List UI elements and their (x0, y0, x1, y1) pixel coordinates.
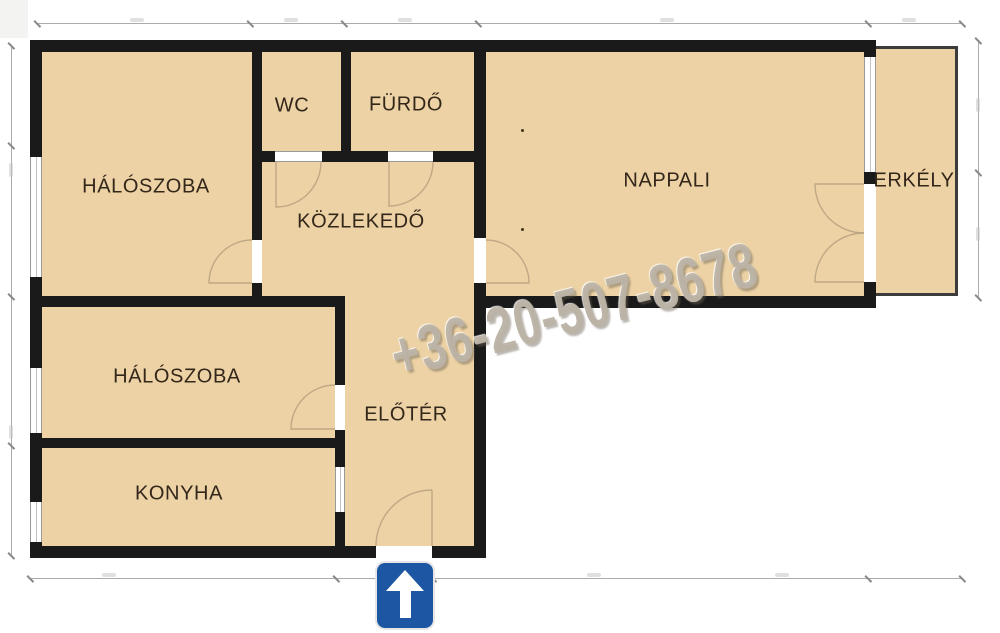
door-opening (275, 151, 322, 162)
wall-segment (341, 52, 351, 151)
door-opening (388, 151, 433, 162)
dimension-label (587, 573, 601, 577)
room-label-bathroom: FÜRDŐ (369, 94, 443, 117)
window (30, 502, 42, 542)
dimension-label (976, 98, 980, 112)
up-arrow-icon (386, 570, 424, 591)
balcony-door-opening (864, 184, 876, 282)
dimension-label (102, 573, 116, 577)
dimension-label (284, 18, 298, 22)
dimension-label (976, 227, 980, 241)
wall-segment (30, 40, 876, 52)
entrance-door-opening (376, 546, 432, 558)
room-label-bedroom-2: HÁLÓSZOBA (113, 366, 241, 389)
entrance-arrow-sign (377, 563, 433, 628)
dimension-label (775, 573, 789, 577)
door-opening (474, 238, 486, 283)
room-label-wc: WC (275, 95, 310, 118)
wall-segment (30, 438, 345, 448)
corner-shade (0, 0, 28, 38)
dimension-label (9, 163, 13, 177)
door-opening (252, 240, 262, 283)
room-label-kitchen: KONYHA (135, 483, 223, 506)
plan-dot (521, 129, 524, 132)
dimension-label (660, 18, 674, 22)
dimension-line-top (37, 23, 962, 24)
plan-dot (521, 228, 524, 231)
room-label-bedroom-1: HÁLÓSZOBA (82, 176, 210, 199)
room-label-living-room: NAPPALI (623, 170, 710, 193)
wall-segment (30, 296, 345, 307)
balcony-wall (955, 46, 958, 296)
window (864, 57, 876, 172)
door-opening (335, 385, 345, 430)
up-arrow-stem (400, 591, 411, 618)
floor-plan: HÁLÓSZOBA WC FÜRDŐ KÖZLEKEDŐ NAPPALI ERK… (0, 0, 1000, 633)
dimension-line-bottom (30, 578, 962, 579)
balcony-wall (876, 46, 958, 49)
window (30, 157, 42, 277)
dimension-label (9, 425, 13, 439)
doorway-kitchen (335, 467, 345, 512)
dimension-line-left (11, 45, 12, 556)
dimension-label (130, 18, 144, 22)
dimension-label (398, 18, 412, 22)
room-label-balcony: ERKÉLY (873, 170, 954, 193)
room-label-hallway: KÖZLEKEDŐ (297, 211, 425, 234)
dimension-label (902, 18, 916, 22)
dimension-line-right (978, 40, 979, 298)
room-label-foyer: ELŐTÉR (364, 404, 448, 427)
window (30, 368, 42, 433)
balcony-wall (876, 293, 958, 296)
